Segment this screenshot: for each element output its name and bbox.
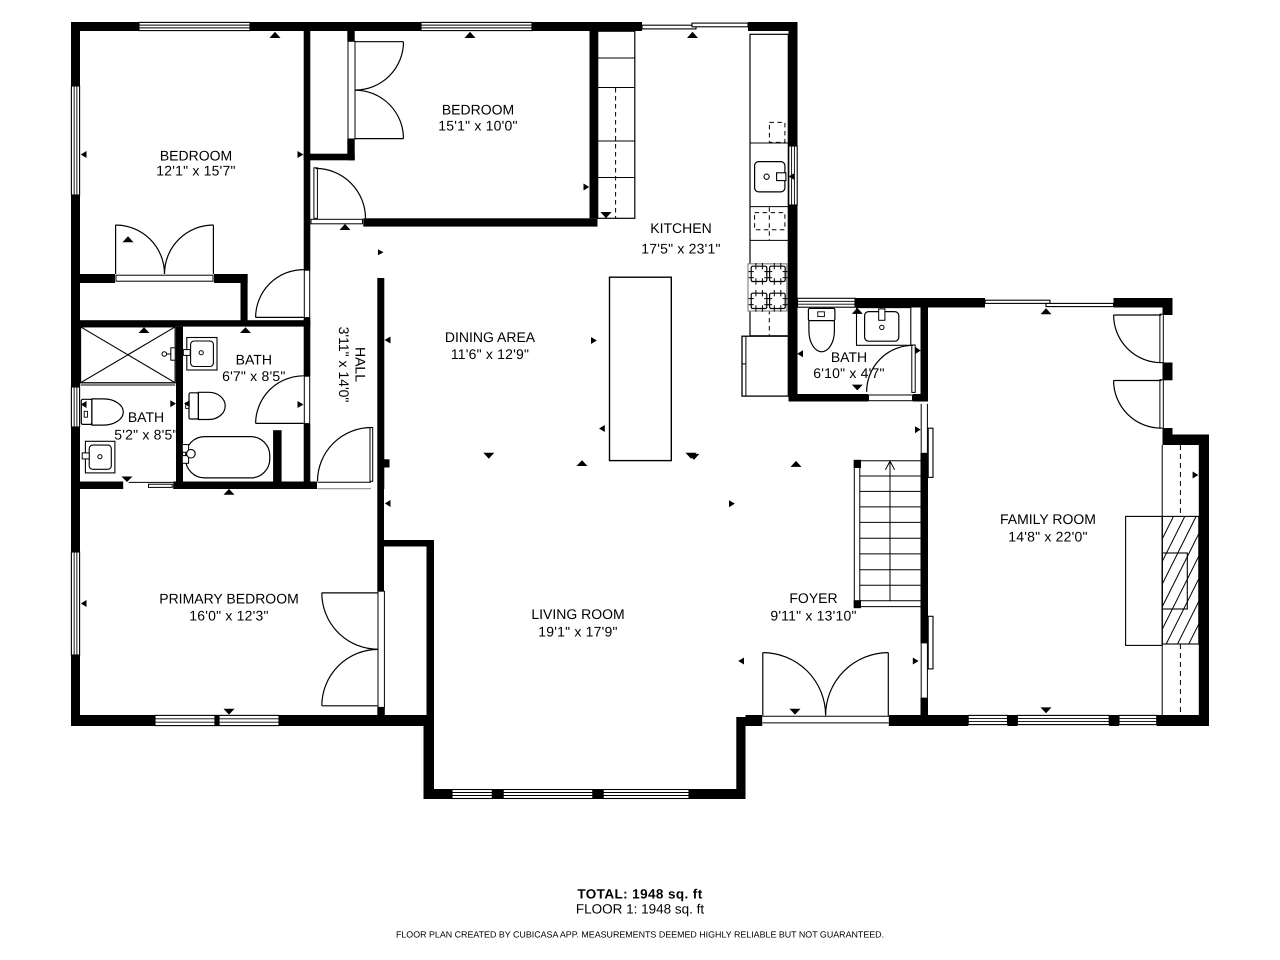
svg-text:BATH: BATH <box>128 409 164 425</box>
svg-text:TOTAL: 1948 sq. ft: TOTAL: 1948 sq. ft <box>577 886 702 901</box>
svg-text:6'7" x 8'5": 6'7" x 8'5" <box>222 368 285 384</box>
svg-text:17'5" x 23'1": 17'5" x 23'1" <box>641 240 720 256</box>
svg-text:19'1" x 17'9": 19'1" x 17'9" <box>538 623 617 639</box>
svg-text:LIVING ROOM: LIVING ROOM <box>531 606 624 622</box>
svg-text:BEDROOM: BEDROOM <box>442 101 514 117</box>
svg-text:FOYER: FOYER <box>789 590 837 606</box>
svg-text:PRIMARY BEDROOM: PRIMARY BEDROOM <box>159 591 299 607</box>
svg-text:11'6" x 12'9": 11'6" x 12'9" <box>451 346 529 362</box>
svg-text:BATH: BATH <box>236 352 272 368</box>
svg-text:KITCHEN: KITCHEN <box>650 220 711 236</box>
svg-text:BEDROOM: BEDROOM <box>160 147 232 163</box>
svg-text:14'8" x 22'0": 14'8" x 22'0" <box>1008 528 1087 544</box>
svg-text:FAMILY ROOM: FAMILY ROOM <box>1000 511 1096 527</box>
svg-text:FLOOR PLAN CREATED BY CUBICASA: FLOOR PLAN CREATED BY CUBICASA APP. MEAS… <box>396 930 884 940</box>
svg-text:12'1" x 15'7": 12'1" x 15'7" <box>156 163 235 179</box>
svg-text:9'11" x 13'10": 9'11" x 13'10" <box>770 607 856 623</box>
svg-text:16'0" x 12'3": 16'0" x 12'3" <box>189 608 268 624</box>
svg-text:3'11" x 14'0": 3'11" x 14'0" <box>336 327 352 403</box>
svg-text:5'2" x 8'5": 5'2" x 8'5" <box>114 426 177 442</box>
svg-text:6'10" x 4'7": 6'10" x 4'7" <box>813 365 884 381</box>
svg-text:15'1" x 10'0": 15'1" x 10'0" <box>438 117 517 133</box>
svg-text:FLOOR 1: 1948 sq. ft: FLOOR 1: 1948 sq. ft <box>576 901 705 916</box>
svg-text:BATH: BATH <box>831 349 867 365</box>
svg-text:DINING AREA: DINING AREA <box>445 329 536 345</box>
svg-text:HALL: HALL <box>353 347 369 382</box>
